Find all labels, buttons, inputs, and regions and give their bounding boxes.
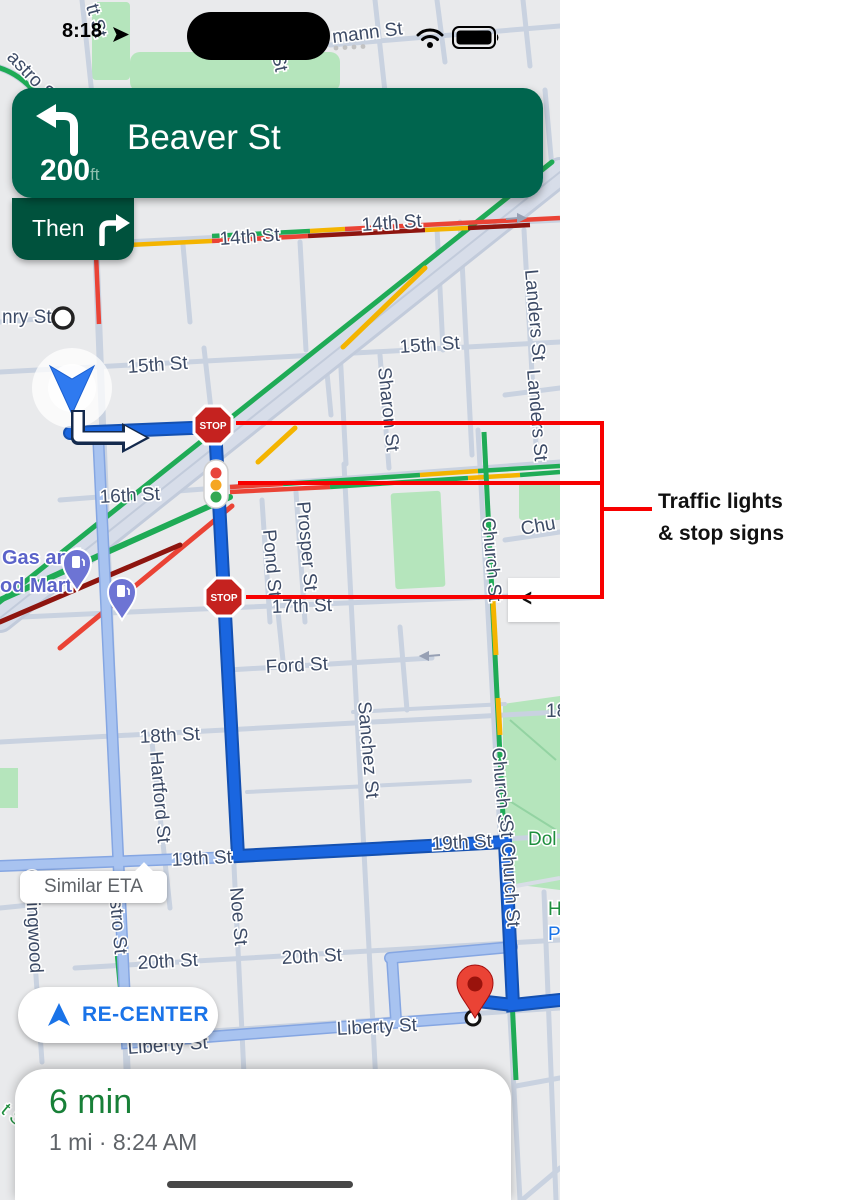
street-label: 20th St (137, 950, 199, 974)
clock: 8:18 (62, 20, 102, 43)
recenter-button[interactable]: RE-CENTER (18, 987, 218, 1043)
battery-icon (452, 26, 504, 50)
trip-summary-sheet[interactable]: 6 min 1 mi · 8:24 AM (15, 1069, 511, 1200)
street-label: Hartford St (145, 751, 174, 845)
next-street-name: Beaver St (127, 118, 281, 158)
stop-sign-icon: STOP (194, 406, 232, 444)
street-label: 20th St (281, 945, 343, 969)
street-label: 15th St (399, 333, 461, 358)
phone-notch (187, 12, 330, 60)
street-label: Sharon St (373, 366, 403, 453)
home-indicator[interactable] (167, 1181, 353, 1188)
street-label: Landers St (522, 369, 551, 463)
street-label: 14th St (219, 225, 281, 250)
street-label: 16th St (99, 484, 161, 508)
street-label: Church St (477, 517, 505, 604)
chevron-left-icon: < (522, 585, 532, 613)
street-label: Noe St (225, 887, 251, 947)
gas-station-label: od Mart (0, 575, 73, 597)
street-label: 14th St (361, 211, 423, 236)
location-services-icon (112, 26, 130, 44)
phone-screenshot: tt St astro S mann St St 14th St 14th St… (0, 0, 560, 1200)
maneuver-distance: 200ft (40, 154, 100, 188)
poi-label: P (548, 924, 560, 945)
street-label: 19th St (431, 831, 493, 855)
then-label: Then (32, 215, 84, 242)
annotation-label: Traffic lights & stop signs (658, 486, 784, 549)
street-label: Landers St (520, 269, 549, 363)
eta-duration: 6 min (49, 1083, 132, 1122)
poi-label: H (548, 899, 560, 920)
street-label: nry St (2, 307, 52, 328)
recenter-label: RE-CENTER (82, 1003, 209, 1027)
street-label: 18th St (139, 724, 201, 748)
tooltip-text: Similar ETA (20, 876, 167, 898)
navigation-arrow-icon (46, 1002, 72, 1028)
street-label: Liberty St (336, 1015, 418, 1040)
route-start-dot (53, 308, 73, 328)
alt-route-tooltip[interactable]: Similar ETA (20, 871, 167, 903)
turn-right-icon (94, 210, 132, 246)
street-label: 17th St (271, 595, 333, 618)
trip-details: 1 mi · 8:24 AM (49, 1129, 197, 1156)
wifi-icon (416, 27, 444, 49)
annotation-line (600, 421, 604, 599)
collapsed-panel[interactable]: < (508, 578, 560, 622)
status-bar: 8:18 (0, 0, 560, 70)
turn-left-icon (34, 100, 90, 156)
then-maneuver-chip[interactable]: Then (12, 198, 134, 260)
traffic-light-icon (204, 460, 228, 508)
street-label: stro St (105, 899, 131, 956)
annotation-line (604, 507, 652, 511)
street-label: 15th St (127, 353, 189, 378)
stop-sign-icon: STOP (205, 578, 243, 616)
poi-label: Dol (528, 829, 557, 850)
navigation-banner[interactable]: 200ft Beaver St (12, 88, 543, 198)
svg-text:STOP: STOP (210, 593, 237, 604)
street-label: Pond St (258, 529, 285, 599)
street-label: 19th St (171, 847, 233, 871)
street-label: Prosper St (292, 501, 321, 593)
street-label: Ford St (265, 654, 329, 678)
svg-text:STOP: STOP (199, 421, 226, 432)
street-label: 18 (546, 701, 560, 722)
